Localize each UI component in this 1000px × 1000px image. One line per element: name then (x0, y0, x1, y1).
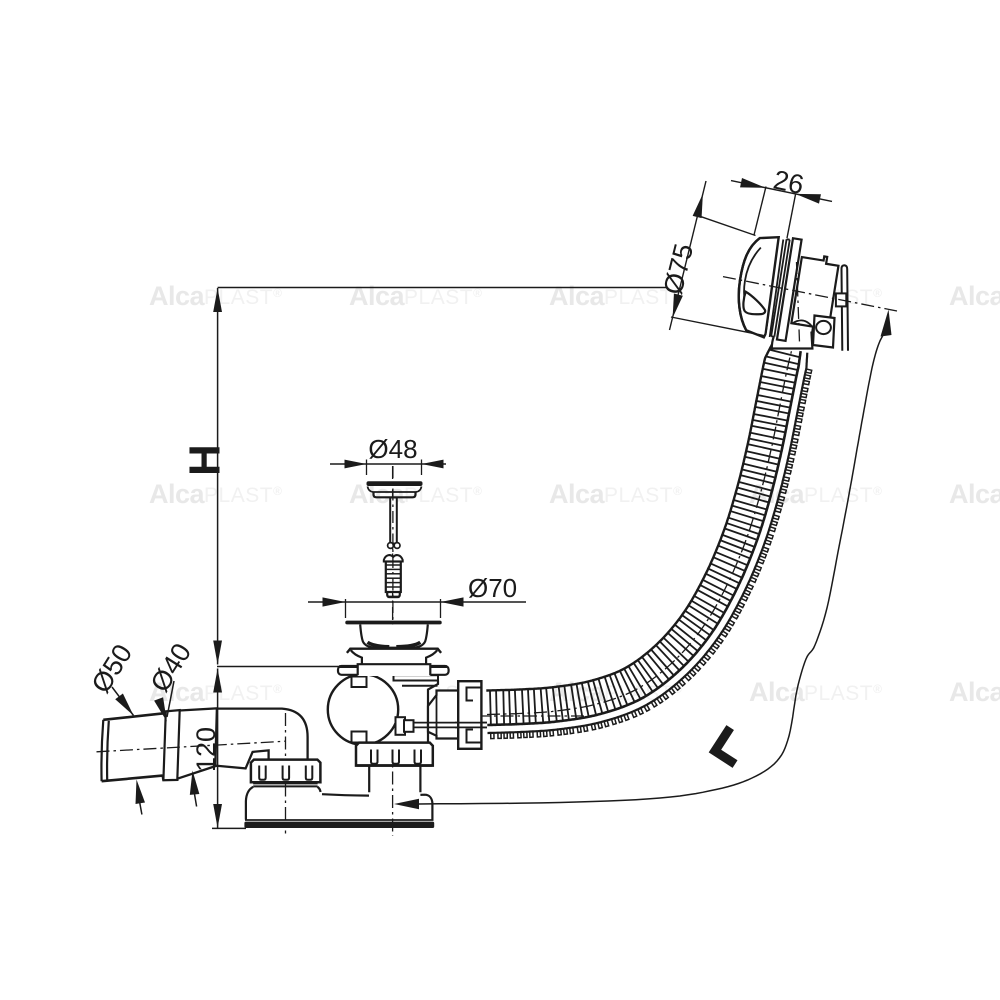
svg-text:AlcaPLAST®: AlcaPLAST® (949, 479, 1000, 509)
svg-text:AlcaPLAST®: AlcaPLAST® (549, 479, 682, 509)
svg-text:Ø48: Ø48 (368, 434, 417, 464)
svg-text:AlcaPLAST®: AlcaPLAST® (949, 677, 1000, 707)
svg-text:AlcaPLAST®: AlcaPLAST® (749, 677, 882, 707)
svg-text:Ø70: Ø70 (468, 573, 517, 603)
svg-text:H: H (181, 444, 230, 476)
svg-text:26: 26 (771, 165, 807, 201)
svg-text:AlcaPLAST®: AlcaPLAST® (349, 281, 482, 311)
svg-text:AlcaPLAST®: AlcaPLAST® (149, 479, 282, 509)
svg-text:AlcaPLAST®: AlcaPLAST® (949, 281, 1000, 311)
